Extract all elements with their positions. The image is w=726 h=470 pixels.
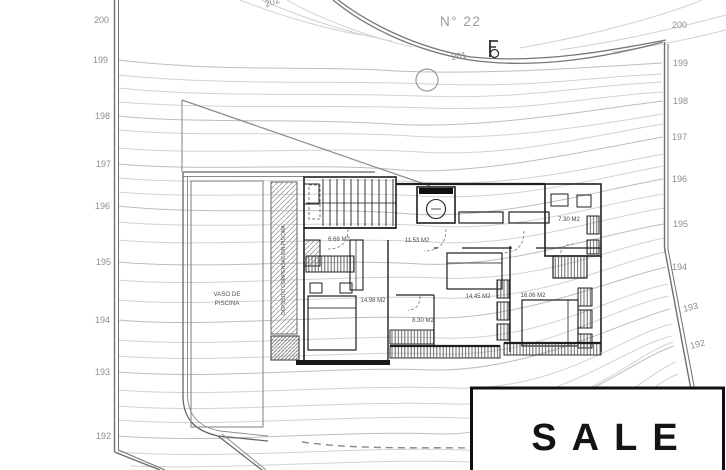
- elev-right-198: 198: [673, 96, 688, 106]
- elev-right-195: 195: [673, 219, 688, 229]
- room-label-bath-top-right: 7.30 M2: [558, 217, 580, 223]
- elevation-labels-left: 200 199 198 197 196 195 194 193 192: [93, 15, 111, 441]
- room-label-stair-hall: 6.68 M2: [328, 237, 350, 243]
- room-area-labels: 6.68 M2 11.53 M2 7.30 M2 14.98 M2 8.30 M…: [328, 217, 580, 324]
- room-label-bedroom-middle: 14.45 M2: [465, 294, 491, 300]
- wc-box: [417, 187, 455, 223]
- elev-right-192: 192: [689, 338, 706, 351]
- elev-left-195: 195: [96, 257, 111, 267]
- elev-left-197: 197: [96, 159, 111, 169]
- pool-label-line1: VASO DE: [213, 291, 240, 298]
- street-label-201: 201: [451, 50, 467, 62]
- lamp-post-icon: [490, 40, 499, 58]
- sale-banner: SALE: [472, 388, 724, 470]
- elev-left-198: 198: [95, 111, 110, 121]
- staircase: [304, 177, 396, 228]
- room-label-landing: 11.53 M2: [405, 238, 430, 244]
- street-label-202: 202: [264, 0, 281, 9]
- elevation-labels-right: 200 199 198 197 196 195 194 193 192: [672, 20, 706, 351]
- road-edge: [333, 0, 666, 63]
- building-plan: [296, 177, 601, 365]
- bedroom-left-furniture: [306, 240, 363, 350]
- elev-right-199: 199: [673, 58, 688, 68]
- dashed-boundary: [302, 442, 468, 448]
- elev-left-199: 199: [93, 55, 108, 65]
- tank-label: DEPOSITO COMPENSACION PISCINA: [281, 225, 287, 315]
- elev-right-193: 193: [682, 301, 699, 314]
- elev-left-193: 193: [95, 367, 110, 377]
- elev-left-200: 200: [94, 15, 109, 25]
- elev-left-196: 196: [95, 201, 110, 211]
- room-label-bedroom-left: 14.98 M2: [360, 298, 386, 304]
- room-label-bath-middle: 8.30 M2: [412, 318, 434, 324]
- elev-right-196: 196: [672, 174, 687, 184]
- elev-right-194: 194: [672, 262, 687, 272]
- site-plan-drawing: N° 22 202 201 200 199 198 197 196 195 19…: [0, 0, 726, 470]
- slope-lines: [182, 100, 430, 186]
- elev-right-200: 200: [672, 20, 687, 30]
- elev-right-197: 197: [672, 132, 687, 142]
- site-plan-page: N° 22 202 201 200 199 198 197 196 195 19…: [0, 0, 726, 470]
- elev-left-194: 194: [95, 315, 110, 325]
- pool-label-line2: PISCINA: [215, 300, 241, 307]
- steps-hatch: [553, 256, 587, 278]
- plot-number-label: N° 22: [440, 14, 481, 29]
- room-label-bedroom-right: 16.06 M2: [520, 293, 546, 299]
- elev-left-192: 192: [96, 431, 111, 441]
- sale-banner-text: SALE: [531, 417, 692, 459]
